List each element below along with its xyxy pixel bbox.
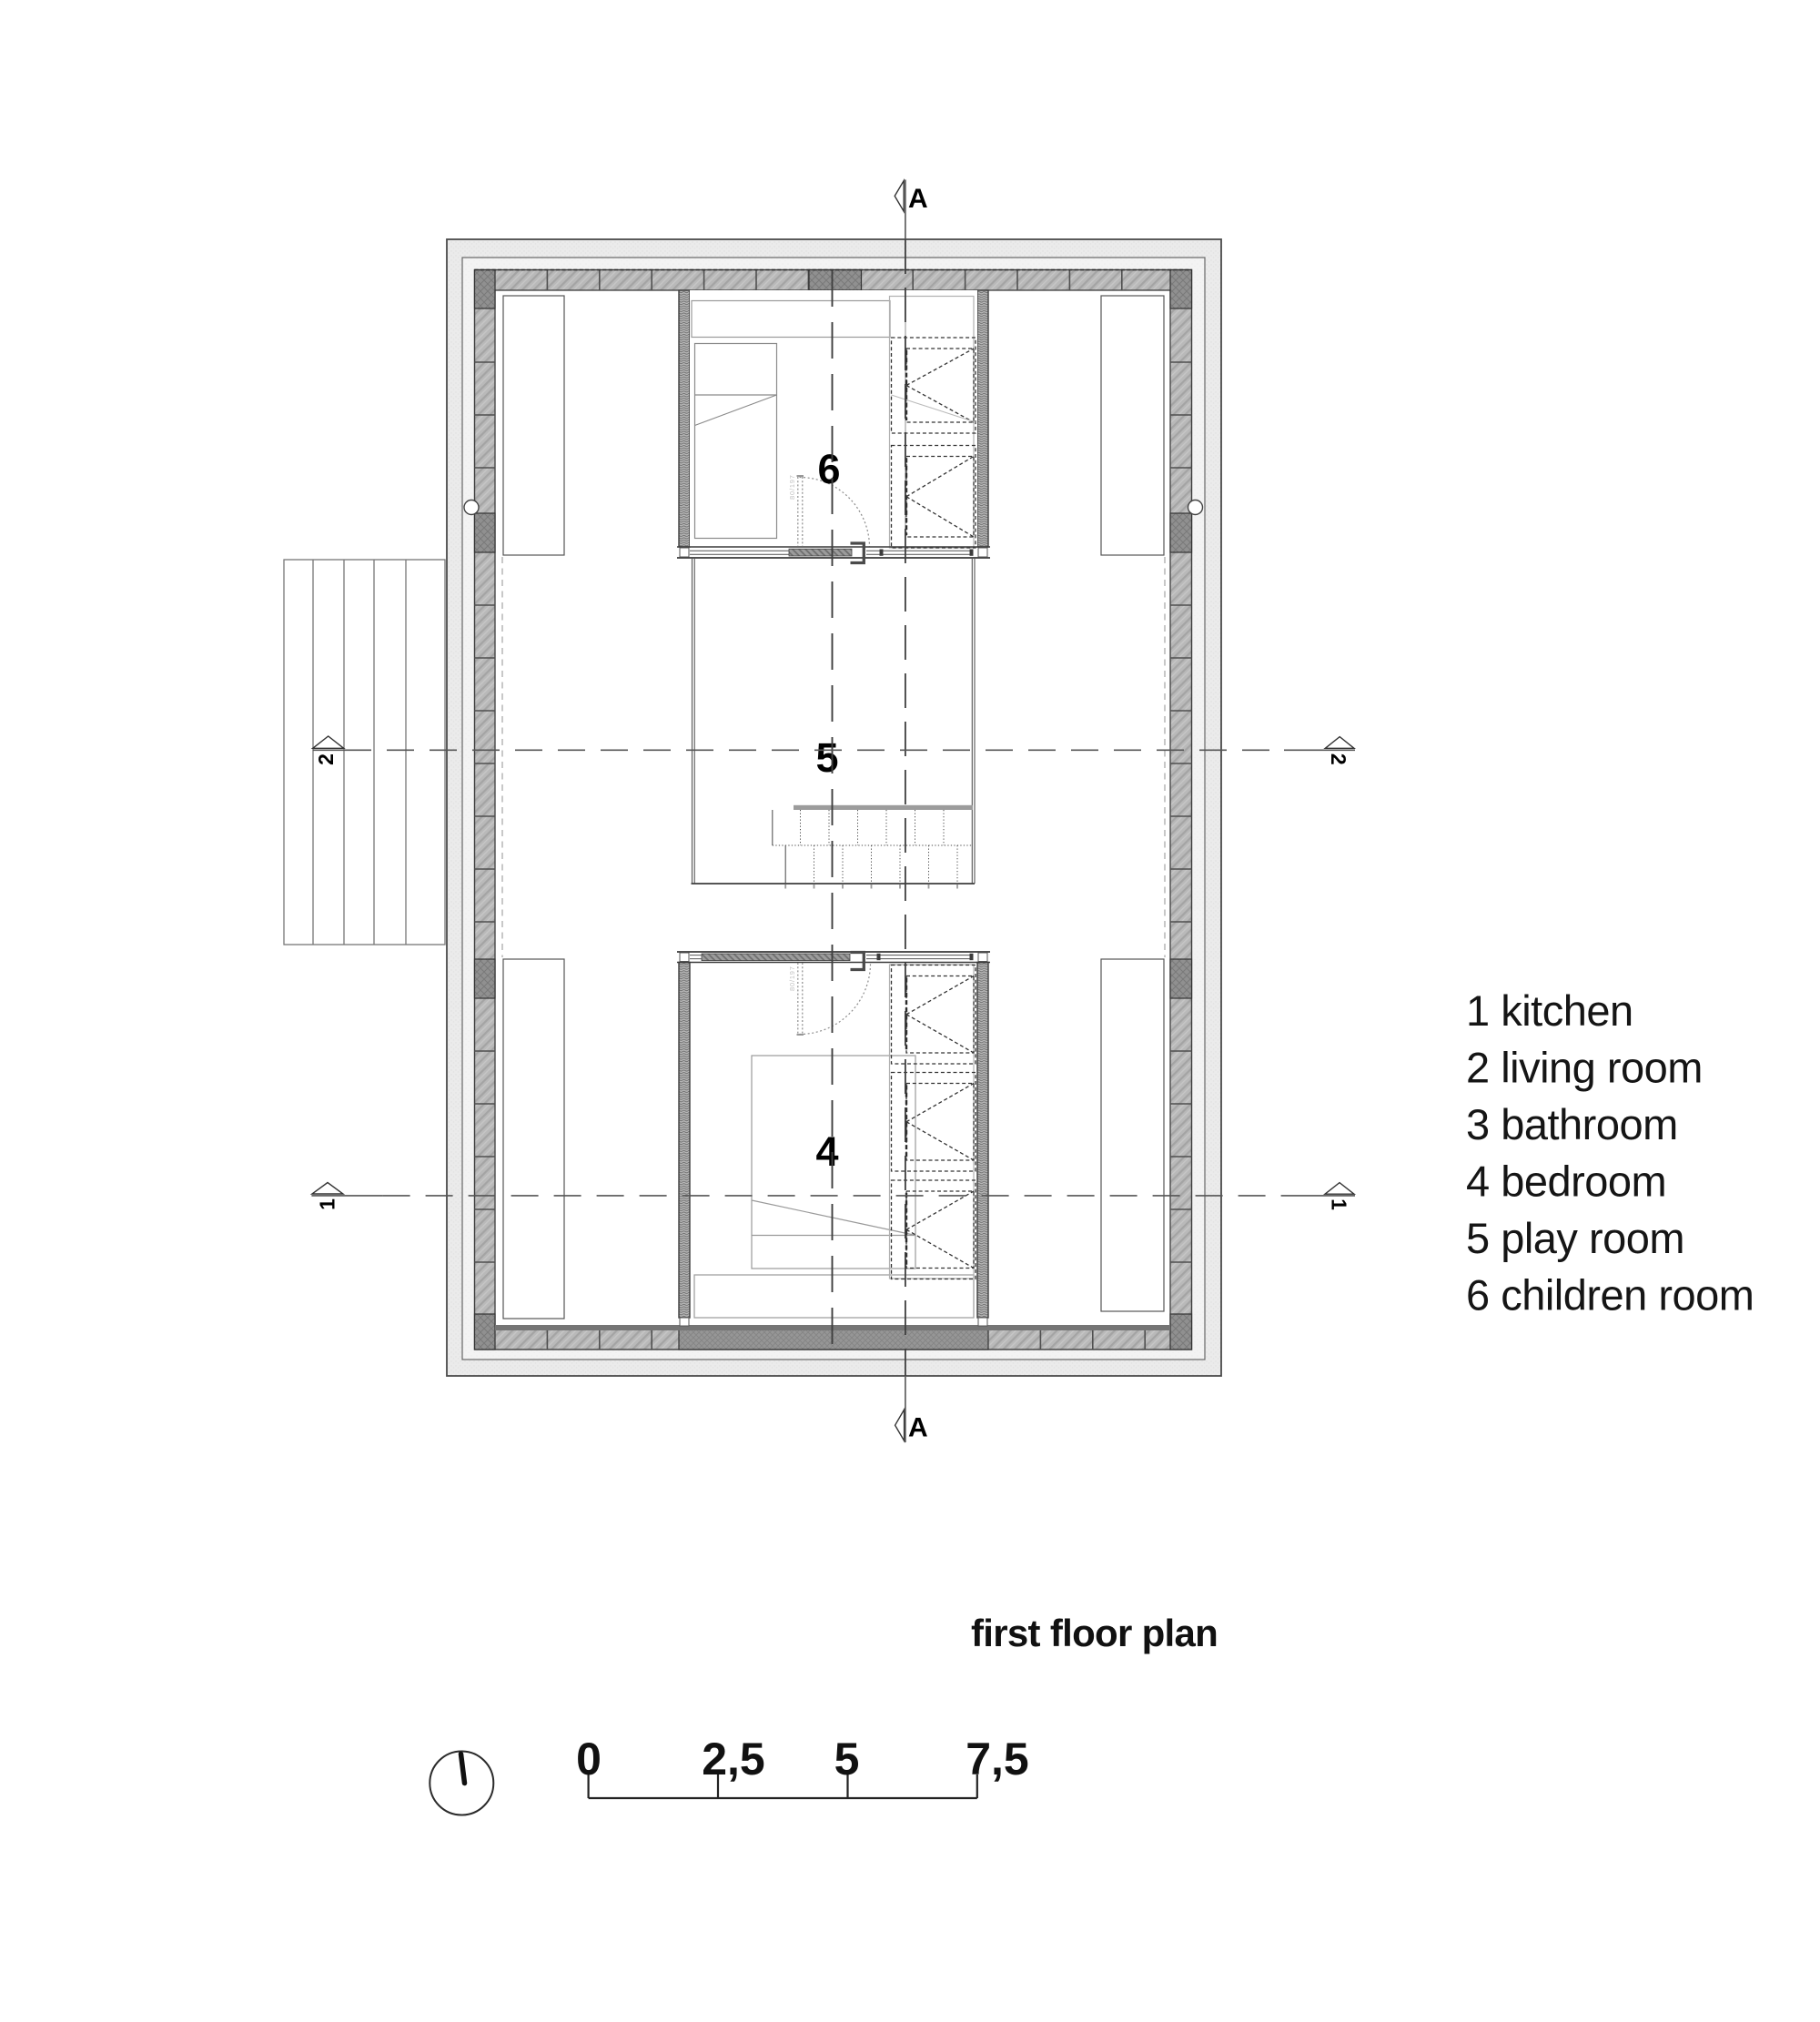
svg-text:first floor plan: first floor plan [971, 1612, 1218, 1654]
svg-text:5: 5 [815, 734, 838, 781]
svg-text:6: 6 [817, 446, 840, 492]
svg-text:3 bathroom: 3 bathroom [1466, 1100, 1678, 1148]
svg-text:5: 5 [834, 1734, 860, 1784]
svg-text:4 bedroom: 4 bedroom [1466, 1158, 1666, 1206]
svg-text:1: 1 [316, 1198, 339, 1210]
svg-text:7,5: 7,5 [966, 1734, 1029, 1784]
svg-text:A: A [908, 184, 928, 214]
svg-text:2: 2 [314, 753, 338, 765]
svg-text:80/197: 80/197 [788, 474, 796, 500]
svg-text:2,5: 2,5 [702, 1734, 765, 1784]
svg-text:A: A [908, 1413, 928, 1443]
svg-text:6 children room: 6 children room [1466, 1271, 1754, 1319]
svg-text:1: 1 [1328, 1198, 1351, 1210]
svg-text:2: 2 [1327, 753, 1350, 765]
svg-text:2 living room: 2 living room [1466, 1044, 1703, 1092]
svg-text:1 kitchen: 1 kitchen [1466, 986, 1633, 1035]
svg-text:4: 4 [815, 1128, 838, 1175]
svg-text:5 play room: 5 play room [1466, 1214, 1684, 1262]
svg-text:0: 0 [576, 1734, 602, 1784]
svg-text:80/197: 80/197 [788, 966, 796, 991]
